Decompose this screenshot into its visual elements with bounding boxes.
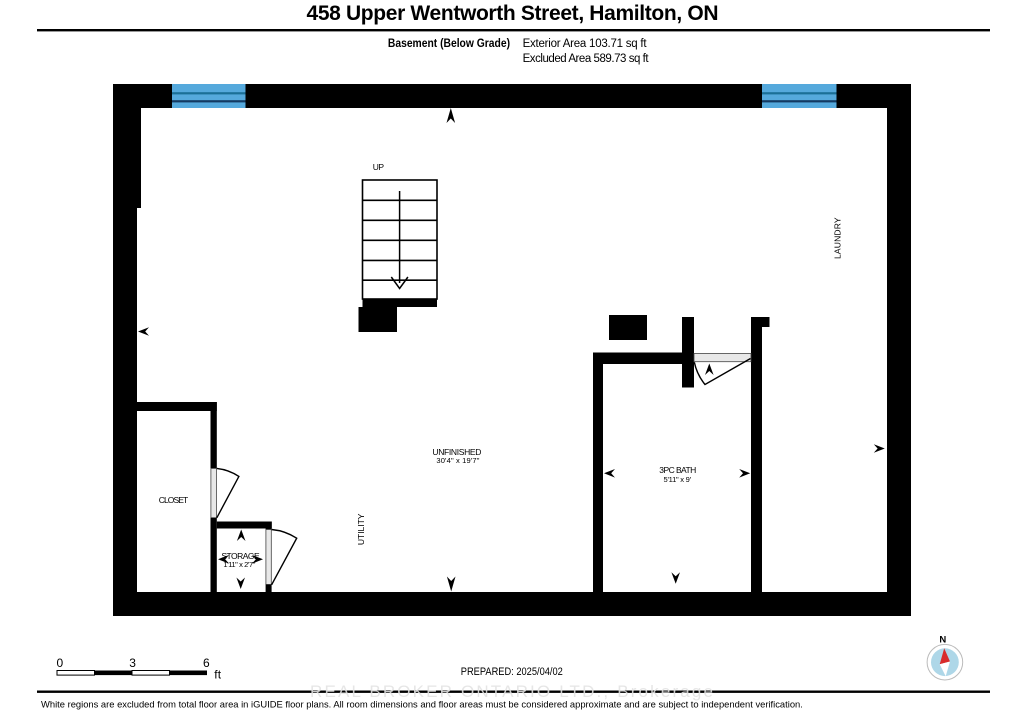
svg-text:White regions are excluded fro: White regions are excluded from total fl… bbox=[41, 698, 803, 709]
svg-text:0: 0 bbox=[57, 656, 64, 670]
svg-text:UTILITY: UTILITY bbox=[356, 513, 366, 545]
svg-text:6: 6 bbox=[203, 656, 210, 670]
svg-text:UP: UP bbox=[373, 162, 385, 172]
svg-text:Excluded Area 589.73 sq ft: Excluded Area 589.73 sq ft bbox=[523, 53, 650, 65]
svg-text:PREPARED: 2025/04/02: PREPARED: 2025/04/02 bbox=[461, 666, 563, 678]
svg-text:CLOSET: CLOSET bbox=[159, 495, 189, 505]
svg-text:Exterior Area 103.71 sq ft: Exterior Area 103.71 sq ft bbox=[523, 38, 648, 50]
svg-text:Basement (Below Grade): Basement (Below Grade) bbox=[388, 37, 510, 50]
svg-text:458 Upper Wentworth Street, Ha: 458 Upper Wentworth Street, Hamilton, ON bbox=[307, 2, 719, 25]
svg-text:5'11" x 9': 5'11" x 9' bbox=[664, 475, 692, 484]
svg-text:LAUNDRY: LAUNDRY bbox=[833, 217, 843, 259]
svg-text:1'11" x 2'7": 1'11" x 2'7" bbox=[223, 560, 255, 569]
svg-text:30'4" x 19'7": 30'4" x 19'7" bbox=[436, 456, 479, 465]
svg-text:3: 3 bbox=[129, 656, 136, 670]
svg-text:N: N bbox=[939, 635, 946, 646]
svg-text:ft: ft bbox=[214, 667, 221, 681]
svg-text:3PC BATH: 3PC BATH bbox=[659, 465, 696, 475]
